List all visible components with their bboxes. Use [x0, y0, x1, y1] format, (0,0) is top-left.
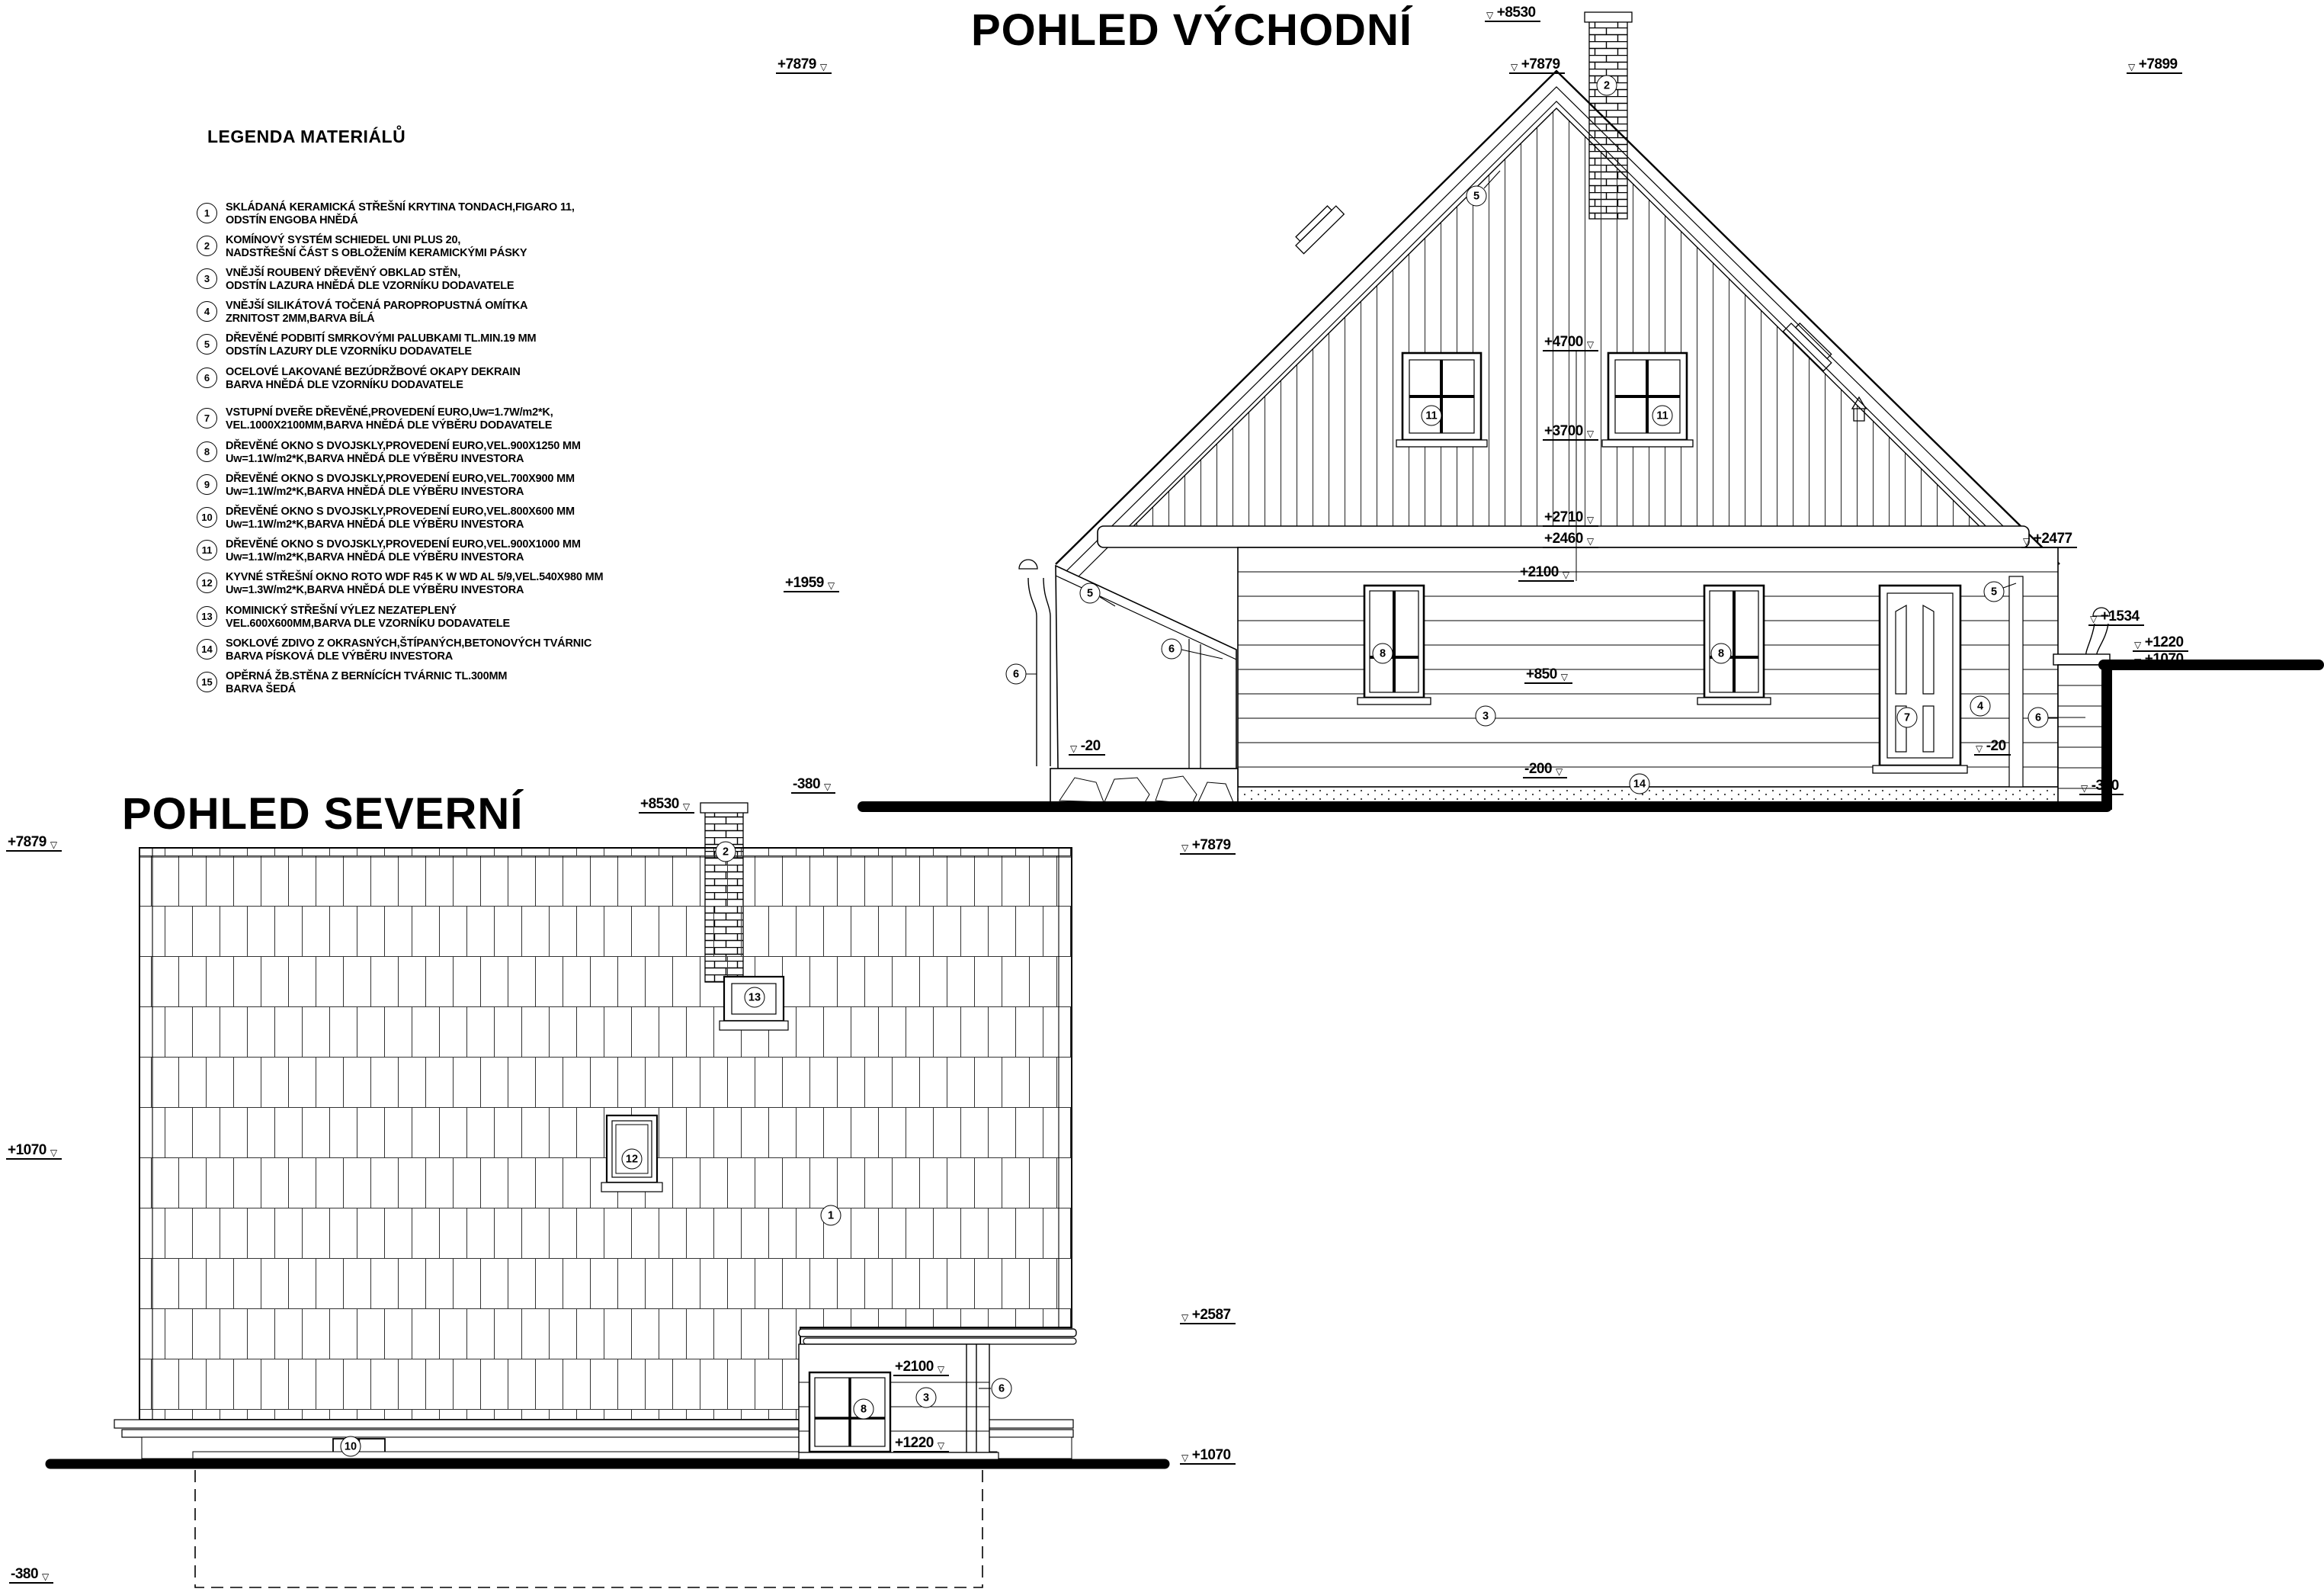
level-triangle-icon: ▽	[50, 839, 57, 850]
level-value: +1959	[785, 575, 824, 591]
elevation-level-marker: ▽ +7879	[1509, 56, 1565, 74]
legend-item-text: OCELOVÉ LAKOVANÉ BEZÚDRŽBOVÉ OKAPY DEKRA…	[226, 366, 521, 391]
elevation-level-marker: +7879 ▽	[6, 834, 62, 852]
level-triangle-icon: ▽	[2090, 614, 2097, 624]
material-callout: 8	[1711, 644, 1732, 664]
material-callout: 11	[1422, 406, 1442, 426]
legend-item: 7 VSTUPNÍ DVEŘE DŘEVĚNÉ,PROVEDENÍ EURO,U…	[197, 406, 553, 432]
level-triangle-icon: ▽	[683, 801, 690, 812]
level-triangle-icon: ▽	[1486, 10, 1493, 21]
east-elevation	[863, 12, 2319, 810]
level-triangle-icon: ▽	[1587, 339, 1594, 350]
material-callout: 6	[2028, 708, 2049, 728]
elevation-level-marker: +1220 ▽	[893, 1435, 949, 1452]
elevation-level-marker: +2100 ▽	[893, 1359, 949, 1376]
level-value: +7879	[777, 56, 816, 72]
legend-item: 15 OPĚRNÁ ŽB.STĚNA Z BERNÍCÍCH TVÁRNIC T…	[197, 670, 507, 695]
material-callout: 8	[1373, 644, 1393, 664]
legend-item: 6 OCELOVÉ LAKOVANÉ BEZÚDRŽBOVÉ OKAPY DEK…	[197, 366, 521, 391]
legend-item-number: 9	[197, 474, 217, 495]
legend-item-number: 8	[197, 441, 217, 462]
elevation-level-marker: ▽ +2477	[2021, 531, 2077, 548]
level-value: +2100	[895, 1359, 934, 1375]
elevation-level-marker: ▽ +8530	[1485, 5, 1540, 22]
level-triangle-icon: ▽	[938, 1440, 944, 1451]
level-value: +2477	[2034, 531, 2072, 547]
legend-item-text: SOKLOVÉ ZDIVO Z OKRASNÝCH,ŠTÍPANÝCH,BETO…	[226, 637, 591, 663]
level-triangle-icon: ▽	[1587, 515, 1594, 525]
level-triangle-icon: ▽	[1563, 570, 1569, 580]
level-value: +7879	[1521, 56, 1560, 72]
elevation-level-marker: ▽ -20	[1974, 738, 2011, 756]
level-triangle-icon: ▽	[2023, 536, 2030, 547]
level-triangle-icon: ▽	[824, 782, 831, 792]
material-callout: 5	[1467, 186, 1487, 207]
legend-item-text: KYVNÉ STŘEŠNÍ OKNO ROTO WDF R45 K W WD A…	[226, 571, 603, 596]
elevation-level-marker: ▽ +1070	[2133, 651, 2188, 669]
legend-item-number: 5	[197, 334, 217, 355]
elevation-level-marker: ▽ +1534	[2088, 608, 2144, 626]
elevation-level-marker: ▽ +2587	[1180, 1307, 1236, 1324]
level-value: +4700	[1544, 334, 1583, 350]
legend-item-text: DŘEVĚNÉ OKNO S DVOJSKLY,PROVEDENÍ EURO,V…	[226, 538, 581, 563]
elevation-level-marker: +4700 ▽	[1543, 334, 1598, 351]
legend-item-text: VNĚJŠÍ SILIKÁTOVÁ TOČENÁ PAROPROPUSTNÁ O…	[226, 300, 527, 325]
legend-item: 11 DŘEVĚNÉ OKNO S DVOJSKLY,PROVEDENÍ EUR…	[197, 538, 581, 563]
elevation-level-marker: -380 ▽	[791, 776, 835, 794]
level-triangle-icon: ▽	[820, 62, 827, 72]
level-value: +7879	[8, 834, 46, 850]
elevation-level-marker: ▽ +7899	[2127, 56, 2182, 74]
material-callout: 6	[1006, 664, 1027, 685]
legend-item: 10 DŘEVĚNÉ OKNO S DVOJSKLY,PROVEDENÍ EUR…	[197, 506, 575, 531]
legend-item-text: VNĚJŠÍ ROUBENÝ DŘEVĚNÝ OBKLAD STĚN,ODSTÍ…	[226, 267, 514, 292]
north-view-title: POHLED SEVERNÍ	[122, 788, 523, 839]
level-value: +1220	[895, 1435, 934, 1451]
legend-item-number: 7	[197, 408, 217, 428]
level-triangle-icon: ▽	[1181, 843, 1188, 853]
level-triangle-icon: ▽	[1181, 1452, 1188, 1463]
legend-item-number: 12	[197, 573, 217, 593]
level-value: +1534	[2101, 608, 2140, 624]
level-value: -20	[1986, 738, 2006, 754]
material-callout: 12	[622, 1149, 643, 1170]
legend-item: 14 SOKLOVÉ ZDIVO Z OKRASNÝCH,ŠTÍPANÝCH,B…	[197, 637, 591, 663]
legend-item-text: VSTUPNÍ DVEŘE DŘEVĚNÉ,PROVEDENÍ EURO,Uw=…	[226, 406, 553, 432]
elevation-level-marker: ▽ -20	[1069, 738, 1105, 756]
legend-item-text: DŘEVĚNÉ OKNO S DVOJSKLY,PROVEDENÍ EURO,V…	[226, 440, 581, 465]
legend-item: 13 KOMINICKÝ STŘEŠNÍ VÝLEZ NEZATEPLENÝVE…	[197, 605, 510, 630]
elevation-level-marker: +850 ▽	[1524, 666, 1572, 684]
east-view-title: POHLED VÝCHODNÍ	[971, 5, 1412, 56]
level-triangle-icon: ▽	[2128, 62, 2135, 72]
elevation-level-marker: +3700 ▽	[1543, 423, 1598, 441]
elevation-level-marker: ▽ +7879	[1180, 837, 1236, 855]
legend-item-number: 14	[197, 639, 217, 660]
level-value: +2100	[1520, 564, 1559, 580]
level-value: -380	[793, 776, 820, 792]
legend-item-text: KOMINICKÝ STŘEŠNÍ VÝLEZ NEZATEPLENÝVEL.6…	[226, 605, 510, 630]
level-value: -200	[1524, 761, 1552, 777]
level-triangle-icon: ▽	[42, 1571, 49, 1582]
elevation-level-marker: ▽ +1220	[2133, 634, 2188, 652]
level-value: +7879	[1192, 837, 1231, 853]
material-callout: 11	[1652, 406, 1673, 426]
legend-title: LEGENDA MATERIÁLŮ	[207, 127, 405, 147]
elevation-level-marker: -380 ▽	[9, 1566, 53, 1584]
material-callout: 1	[821, 1205, 841, 1226]
material-callout: 3	[916, 1388, 937, 1408]
legend-item: 2 KOMÍNOVÝ SYSTÉM SCHIEDEL UNI PLUS 20,N…	[197, 234, 527, 259]
level-value: +8530	[640, 796, 679, 812]
elevation-level-marker: ▽ +1070	[1180, 1447, 1236, 1465]
legend-item-number: 11	[197, 540, 217, 560]
level-triangle-icon: ▽	[2134, 656, 2141, 667]
north-elevation	[50, 803, 1165, 1587]
level-value: -20	[1081, 738, 1101, 754]
legend-item-text: DŘEVĚNÉ PODBITÍ SMRKOVÝMI PALUBKAMI TL.M…	[226, 332, 536, 358]
legend-item: 8 DŘEVĚNÉ OKNO S DVOJSKLY,PROVEDENÍ EURO…	[197, 440, 581, 465]
material-callout: 6	[992, 1379, 1012, 1399]
drawing-sheet: POHLED VÝCHODNÍ POHLED SEVERNÍ LEGENDA M…	[0, 0, 2324, 1592]
level-triangle-icon: ▽	[1976, 743, 1983, 754]
level-value: +1070	[2145, 651, 2184, 667]
legend-item-text: DŘEVĚNÉ OKNO S DVOJSKLY,PROVEDENÍ EURO,V…	[226, 506, 575, 531]
legend-item-number: 4	[197, 301, 217, 322]
level-triangle-icon: ▽	[1181, 1312, 1188, 1323]
material-callout: 6	[1162, 639, 1182, 660]
level-value: +2710	[1544, 509, 1583, 525]
elevation-level-marker: +8530 ▽	[639, 796, 694, 814]
legend-item-number: 15	[197, 672, 217, 692]
level-triangle-icon: ▽	[1587, 536, 1594, 547]
level-triangle-icon: ▽	[1587, 428, 1594, 439]
material-callout: 7	[1897, 708, 1918, 728]
legend-item-text: DŘEVĚNÉ OKNO S DVOJSKLY,PROVEDENÍ EURO,V…	[226, 473, 575, 498]
level-triangle-icon: ▽	[938, 1364, 944, 1375]
legend-item-text: SKLÁDANÁ KERAMICKÁ STŘEŠNÍ KRYTINA TONDA…	[226, 201, 575, 226]
level-value: -380	[11, 1566, 38, 1582]
legend-item-text: OPĚRNÁ ŽB.STĚNA Z BERNÍCÍCH TVÁRNIC TL.3…	[226, 670, 507, 695]
elevation-level-marker: +1070 ▽	[6, 1142, 62, 1160]
legend-item: 9 DŘEVĚNÉ OKNO S DVOJSKLY,PROVEDENÍ EURO…	[197, 473, 575, 498]
level-triangle-icon: ▽	[1556, 766, 1563, 777]
level-value: +1070	[8, 1142, 46, 1158]
material-callout: 2	[716, 842, 736, 862]
legend-item: 12 KYVNÉ STŘEŠNÍ OKNO ROTO WDF R45 K W W…	[197, 571, 603, 596]
material-callout: 13	[745, 987, 765, 1008]
material-callout: 8	[854, 1399, 874, 1420]
level-value: +8530	[1497, 5, 1536, 21]
legend-item-number: 1	[197, 203, 217, 223]
legend-item: 4 VNĚJŠÍ SILIKÁTOVÁ TOČENÁ PAROPROPUSTNÁ…	[197, 300, 527, 325]
level-value: +7899	[2139, 56, 2178, 72]
legend-item: 3 VNĚJŠÍ ROUBENÝ DŘEVĚNÝ OBKLAD STĚN,ODS…	[197, 267, 514, 292]
elevation-level-marker: +1959 ▽	[784, 575, 839, 592]
legend-item: 5 DŘEVĚNÉ PODBITÍ SMRKOVÝMI PALUBKAMI TL…	[197, 332, 536, 358]
material-callout: 10	[341, 1436, 361, 1457]
level-value: +1070	[1192, 1447, 1231, 1463]
legend-item-number: 10	[197, 507, 217, 528]
legend-item-text: KOMÍNOVÝ SYSTÉM SCHIEDEL UNI PLUS 20,NAD…	[226, 234, 527, 259]
level-triangle-icon: ▽	[2081, 783, 2088, 794]
material-callout: 5	[1984, 582, 2005, 602]
material-callout: 4	[1970, 696, 1991, 717]
level-triangle-icon: ▽	[1070, 743, 1077, 754]
level-value: +3700	[1544, 423, 1583, 439]
elevation-level-marker: -200 ▽	[1523, 761, 1567, 778]
material-callout: 14	[1630, 774, 1650, 794]
level-triangle-icon: ▽	[50, 1147, 57, 1158]
material-callout: 5	[1080, 583, 1101, 604]
elevation-level-marker: +7879 ▽	[776, 56, 832, 74]
material-callout: 2	[1597, 75, 1617, 96]
level-triangle-icon: ▽	[828, 580, 835, 591]
legend-item-number: 2	[197, 236, 217, 256]
legend-item-number: 3	[197, 268, 217, 289]
material-callout: 3	[1476, 706, 1496, 727]
elevation-level-marker: ▽ -380	[2079, 778, 2124, 795]
level-value: +1220	[2145, 634, 2184, 650]
elevation-level-marker: +2710 ▽	[1543, 509, 1598, 527]
level-value: +2460	[1544, 531, 1583, 547]
level-triangle-icon: ▽	[1511, 62, 1518, 72]
level-triangle-icon: ▽	[2134, 640, 2141, 650]
elevation-level-marker: +2460 ▽	[1543, 531, 1598, 548]
level-value: -380	[2092, 778, 2119, 794]
legend-item-number: 13	[197, 606, 217, 627]
level-value: +2587	[1192, 1307, 1231, 1323]
level-triangle-icon: ▽	[1561, 672, 1568, 682]
level-value: +850	[1526, 666, 1557, 682]
legend-item-number: 6	[197, 368, 217, 388]
legend-item: 1 SKLÁDANÁ KERAMICKÁ STŘEŠNÍ KRYTINA TON…	[197, 201, 575, 226]
elevation-level-marker: +2100 ▽	[1518, 564, 1574, 582]
